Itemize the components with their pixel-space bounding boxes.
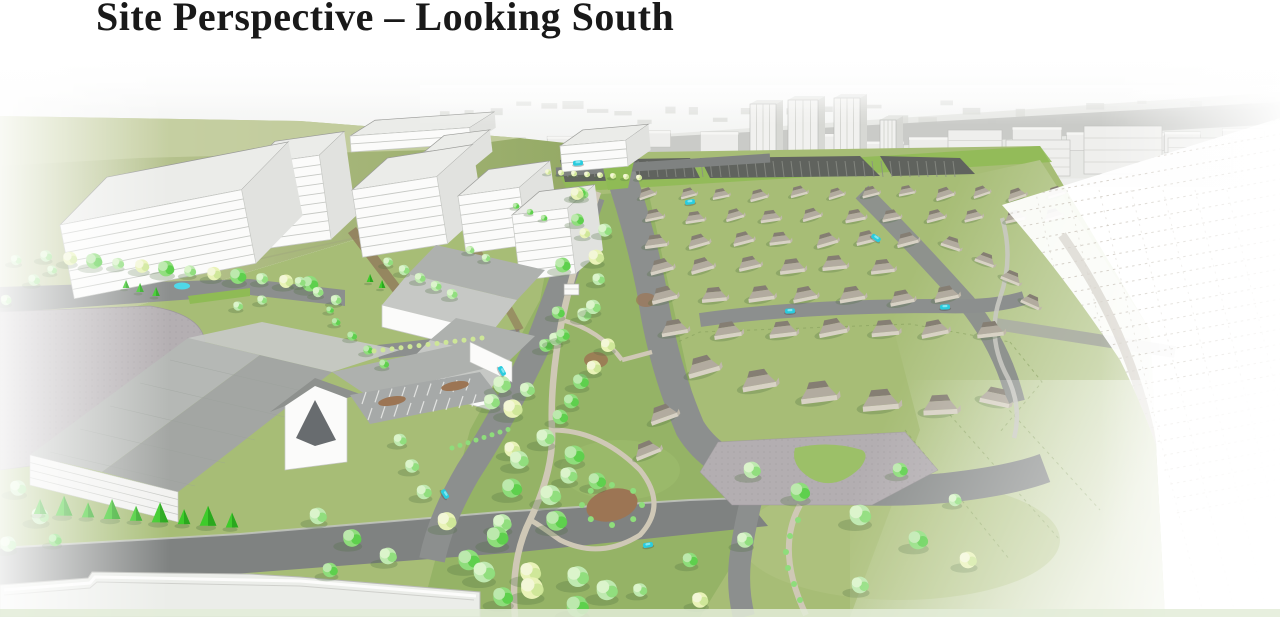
- shrub: [399, 345, 404, 350]
- presentation-slide: Site Perspective – Looking South: [0, 0, 1280, 617]
- shrub: [482, 435, 487, 440]
- shrub: [381, 347, 386, 352]
- shrub: [787, 533, 793, 539]
- shrub: [474, 438, 479, 443]
- shrub: [471, 337, 476, 342]
- shrub: [426, 342, 431, 347]
- shrub: [466, 440, 471, 445]
- pond: [174, 283, 190, 290]
- shrub: [435, 341, 440, 346]
- shrub: [462, 338, 467, 343]
- shrub: [797, 597, 803, 603]
- shrub: [588, 488, 594, 494]
- shrub: [408, 344, 413, 349]
- shrub: [506, 427, 511, 432]
- shrub: [480, 336, 485, 341]
- shrub: [639, 502, 645, 508]
- shrub: [609, 522, 615, 528]
- shrub: [450, 446, 455, 451]
- shrub: [372, 349, 377, 354]
- shrub: [444, 340, 449, 345]
- shrub: [795, 517, 801, 523]
- shrub: [630, 516, 636, 522]
- shrub: [390, 346, 395, 351]
- shrub: [783, 549, 789, 555]
- site-perspective-rendering: [0, 0, 1280, 617]
- shrub: [588, 516, 594, 522]
- shrub: [579, 502, 585, 508]
- shrub: [498, 430, 503, 435]
- shrub: [490, 432, 495, 437]
- shrub: [785, 565, 791, 571]
- shrub: [458, 443, 463, 448]
- shrub: [417, 343, 422, 348]
- shrub: [630, 488, 636, 494]
- shrub: [791, 581, 797, 587]
- shrub: [453, 339, 458, 344]
- shrub: [609, 482, 615, 488]
